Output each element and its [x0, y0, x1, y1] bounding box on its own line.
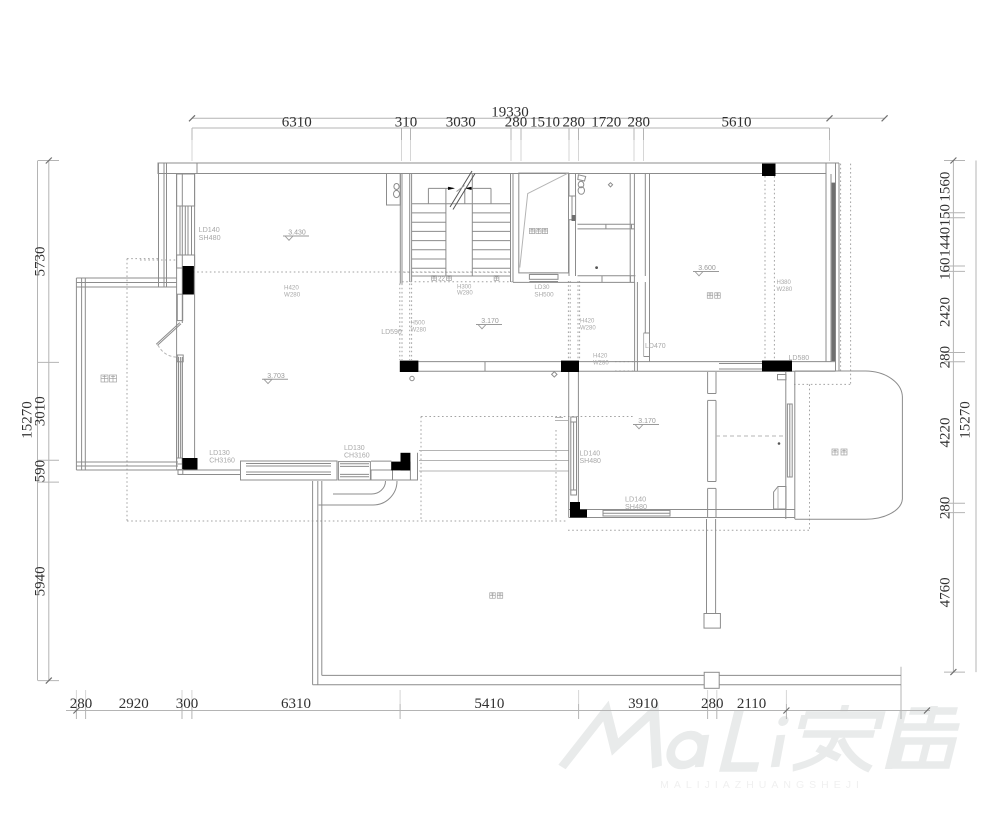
svg-text:5730: 5730 — [33, 246, 49, 276]
svg-text:310: 310 — [395, 115, 418, 131]
svg-text:1560: 1560 — [938, 172, 954, 202]
svg-text:4760: 4760 — [938, 577, 954, 607]
svg-text:3910: 3910 — [628, 696, 658, 712]
svg-text:22: 22 — [438, 277, 445, 283]
svg-text:SH500: SH500 — [534, 291, 554, 298]
svg-text:280: 280 — [701, 696, 724, 712]
svg-text:280: 280 — [938, 497, 954, 520]
svg-text:3.430: 3.430 — [288, 230, 306, 237]
svg-text:1720: 1720 — [591, 115, 621, 131]
svg-text:1510: 1510 — [530, 115, 560, 131]
svg-text:W280: W280 — [593, 361, 609, 367]
svg-text:LD140: LD140 — [580, 451, 601, 458]
svg-text:2420: 2420 — [938, 297, 954, 327]
svg-text:280: 280 — [628, 115, 651, 131]
svg-text:3030: 3030 — [446, 115, 476, 131]
svg-text:LD30: LD30 — [534, 284, 550, 291]
svg-text:6310: 6310 — [281, 696, 311, 712]
svg-text:CH3160: CH3160 — [209, 458, 235, 465]
svg-text:160: 160 — [938, 257, 954, 280]
svg-text:15270: 15270 — [20, 401, 36, 439]
svg-text:1440: 1440 — [938, 227, 954, 257]
svg-text:LD130: LD130 — [209, 450, 230, 457]
svg-text:2920: 2920 — [119, 696, 149, 712]
svg-text:W280: W280 — [457, 290, 473, 296]
svg-text:150: 150 — [938, 204, 954, 227]
svg-text:W280: W280 — [411, 328, 427, 334]
svg-text:280: 280 — [563, 115, 586, 131]
svg-text:2110: 2110 — [737, 696, 766, 712]
svg-text:5410: 5410 — [474, 696, 504, 712]
svg-text:SH480: SH480 — [199, 233, 221, 242]
svg-text:3.170: 3.170 — [481, 318, 499, 325]
svg-text:5610: 5610 — [722, 115, 752, 131]
svg-text:6310: 6310 — [282, 115, 312, 131]
svg-text:590: 590 — [33, 460, 49, 483]
svg-text:3.703: 3.703 — [267, 373, 285, 380]
svg-text:CH3160: CH3160 — [344, 453, 370, 460]
svg-text:3.170: 3.170 — [638, 418, 656, 425]
svg-text:SH480: SH480 — [580, 458, 602, 465]
svg-text:MALIJIAZHUANGSHEJI: MALIJIAZHUANGSHEJI — [660, 779, 864, 791]
svg-text:W280: W280 — [284, 292, 301, 299]
svg-text:4220: 4220 — [938, 418, 954, 448]
svg-text:W280: W280 — [777, 287, 793, 293]
svg-text:300: 300 — [176, 696, 199, 712]
svg-text:5940: 5940 — [33, 566, 49, 596]
svg-text:3.600: 3.600 — [698, 265, 716, 272]
svg-text:15270: 15270 — [958, 401, 974, 439]
svg-text:H500: H500 — [411, 321, 426, 327]
svg-text:H380: H380 — [777, 280, 792, 286]
svg-text:280: 280 — [938, 346, 954, 369]
svg-text:280: 280 — [505, 115, 528, 131]
svg-text:LD590: LD590 — [381, 329, 402, 336]
svg-text:LD580: LD580 — [789, 355, 810, 362]
svg-text:LD130: LD130 — [344, 445, 365, 452]
svg-text:LD470: LD470 — [645, 343, 666, 350]
svg-text:280: 280 — [70, 696, 93, 712]
svg-text:SH480: SH480 — [625, 502, 647, 511]
svg-text:W280: W280 — [580, 326, 596, 332]
svg-text:H420: H420 — [284, 285, 299, 292]
svg-text:H420: H420 — [580, 319, 595, 325]
svg-text:H420: H420 — [593, 354, 608, 360]
